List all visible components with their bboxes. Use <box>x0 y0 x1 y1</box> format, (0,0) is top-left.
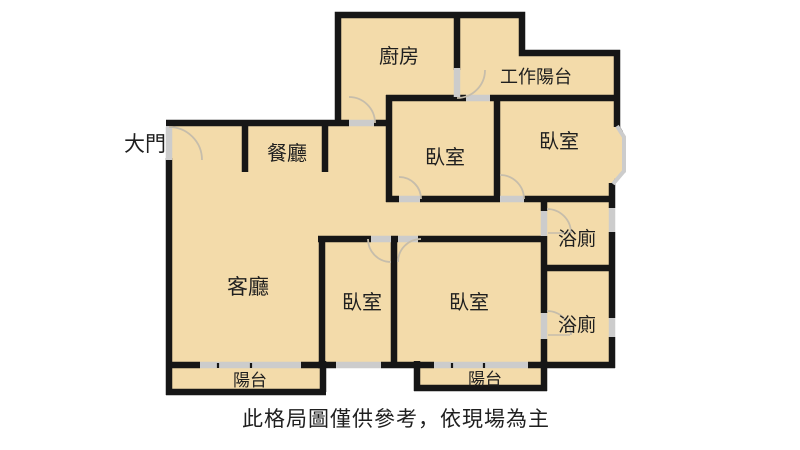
living-label: 客廳 <box>227 276 269 299</box>
kitchen-label: 廚房 <box>379 44 419 68</box>
work-balcony-label: 工作陽台 <box>500 67 572 87</box>
bath-lower-label: 浴廁 <box>558 313 596 336</box>
floor-plan-image: 大門 廚房 工作陽台 餐廳 臥室 臥室 浴廁 客廳 臥室 臥室 浴廁 陽台 陽台… <box>0 0 800 450</box>
bedroom-top-mid-label: 臥室 <box>425 146 465 169</box>
entrance-label: 大門 <box>124 133 166 156</box>
bedroom-top-right-label: 臥室 <box>539 130 579 153</box>
dining-label: 餐廳 <box>267 142 307 165</box>
floor-plan-svg: 大門 廚房 工作陽台 餐廳 臥室 臥室 浴廁 客廳 臥室 臥室 浴廁 陽台 陽台… <box>0 0 800 450</box>
balcony-living-label: 陽台 <box>233 371 267 390</box>
bath-upper-label: 浴廁 <box>558 227 596 250</box>
bedroom-bottom-left-label: 臥室 <box>342 291 382 314</box>
bedroom-master-label: 臥室 <box>449 291 489 314</box>
disclaimer-caption: 此格局圖僅供參考，依現場為主 <box>242 408 550 431</box>
balcony-master-label: 陽台 <box>468 370 502 389</box>
